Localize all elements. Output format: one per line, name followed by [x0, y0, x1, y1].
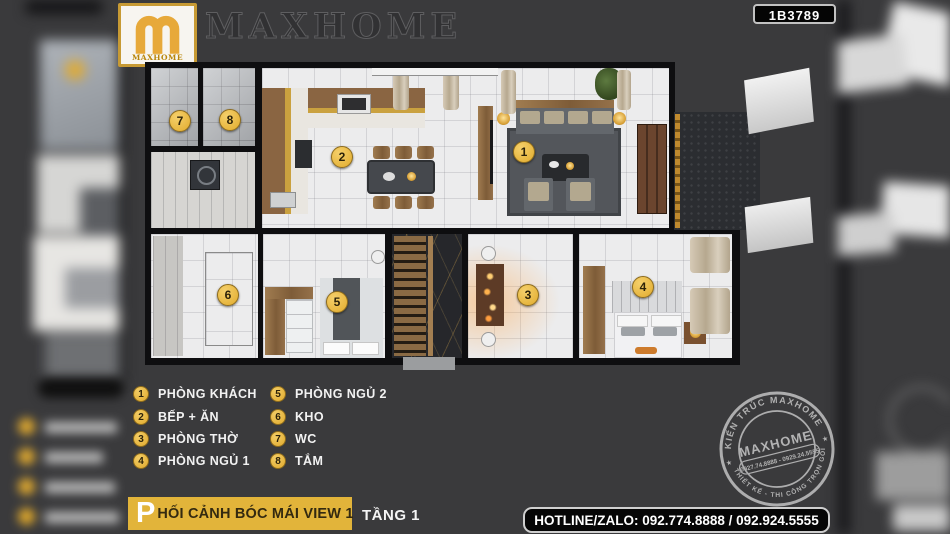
blur-shape [80, 188, 122, 236]
curtain [501, 70, 516, 114]
armchair [524, 178, 553, 211]
table-decor [407, 172, 416, 181]
legend-label: PHÒNG THỜ [158, 432, 238, 446]
pillow [617, 315, 648, 327]
kitchen-living-floor [262, 68, 669, 228]
dining-chair [417, 146, 434, 159]
pillow-gray [621, 327, 645, 336]
blur-shape [888, 386, 950, 454]
legend-number: 3 [133, 431, 149, 447]
blur-shape [45, 422, 117, 433]
sofa-cushion [568, 111, 588, 124]
legend-number: 5 [270, 386, 286, 402]
legend-number: 8 [270, 453, 286, 469]
blur-shape [838, 212, 896, 257]
room-bath [203, 68, 255, 146]
legend-number: 2 [133, 409, 149, 425]
decor-round [371, 250, 385, 264]
curtain [443, 70, 459, 110]
floor-label: TẦNG 1 [362, 507, 420, 524]
blur-shape [18, 418, 35, 435]
legend-label: PHÒNG NGỦ 2 [295, 387, 387, 401]
blur-shape [40, 40, 118, 150]
pillow [352, 342, 379, 355]
legend-number: 7 [270, 431, 286, 447]
blur-shape [45, 452, 103, 463]
dining-chair [373, 196, 390, 209]
room-storage [151, 234, 258, 358]
curtain [690, 237, 730, 273]
room-bedroom2 [263, 234, 385, 358]
altar-vase [481, 332, 496, 347]
window-sill [372, 68, 498, 76]
blur-shape [65, 268, 120, 308]
dining-table [367, 160, 435, 194]
dining-chair [373, 146, 390, 159]
plan-marker-5: 5 [326, 291, 348, 313]
floor-lamp [613, 112, 626, 125]
curtain [617, 70, 631, 110]
legend-label: KHO [295, 410, 324, 424]
plan-marker-8: 8 [219, 109, 241, 131]
sink [270, 192, 296, 208]
maxhome-logo-m-icon [131, 8, 184, 56]
armchair [566, 178, 595, 211]
sofa-cushion [520, 111, 540, 124]
legend-number: 1 [133, 386, 149, 402]
room-wc [151, 68, 198, 146]
pillow-gray [653, 327, 677, 336]
tv-console [478, 106, 493, 200]
entrance-door [637, 124, 667, 214]
plan-code-badge: 1B3789 [753, 4, 836, 24]
table-plate [383, 172, 395, 181]
blur-shape [876, 452, 950, 500]
armchair-cushion [570, 182, 591, 201]
sofa-cushion [544, 111, 564, 124]
porch-step [745, 197, 814, 253]
washing-machine [190, 160, 220, 190]
storage-shelf-side [153, 236, 183, 356]
altar-vase [481, 246, 496, 261]
pillow [323, 342, 350, 355]
pillow [651, 315, 682, 327]
view-title-initial: P [136, 499, 155, 528]
altar-table [476, 264, 504, 326]
blur-shape [25, 0, 103, 14]
stove [337, 94, 371, 114]
logo-wordmark: MAXHOME [121, 53, 194, 62]
legend-label: PHÒNG NGỦ 1 [158, 454, 250, 468]
maxhome-logo: MAXHOME [118, 3, 197, 67]
hotline-badge: HOTLINE/ZALO: 092.774.8888 / 092.924.555… [523, 507, 830, 533]
view-title-banner: P HỐI CẢNH BÓC MÁI VIEW 1 [128, 497, 352, 530]
legend-number: 6 [270, 409, 286, 425]
plan-marker-1: 1 [513, 141, 535, 163]
curtain [393, 70, 409, 110]
legend-label: PHÒNG KHÁCH [158, 387, 257, 401]
stair-rail [428, 236, 433, 356]
blur-shape [120, 30, 125, 380]
blur-shape [18, 508, 35, 525]
plan-marker-4: 4 [632, 276, 654, 298]
stamp-star-icon: ★ [821, 434, 829, 443]
sofa-cushion [592, 111, 612, 124]
dining-chair [417, 196, 434, 209]
table-decor [566, 162, 574, 170]
sofa [516, 108, 614, 134]
plan-marker-6: 6 [217, 284, 239, 306]
brand-title: MAXHOME [205, 6, 462, 47]
bed1-mattress [614, 312, 682, 358]
door-threshold [675, 114, 680, 228]
porch-step [744, 68, 814, 134]
floor-plan [145, 62, 740, 365]
blur-shape [38, 378, 124, 398]
blur-shape [838, 34, 909, 94]
wardrobe [265, 299, 285, 355]
laundry-area [151, 152, 255, 228]
coffee-table [542, 154, 589, 181]
bedroom2-counter [265, 287, 313, 299]
dining-chair [395, 196, 412, 209]
plan-marker-3: 3 [517, 284, 539, 306]
legend-label: BẾP + ĂN [158, 410, 219, 424]
armchair-cushion [528, 182, 549, 201]
legend-label: WC [295, 432, 317, 446]
plan-marker-2: 2 [331, 146, 353, 168]
plan-marker-7: 7 [169, 110, 191, 132]
stove-burners [342, 98, 366, 110]
company-stamp: KIẾN TRÚC MAXHOME THIẾT KẾ - THI CÔNG TR… [702, 374, 852, 524]
fridge [295, 140, 312, 168]
stamp-star-icon: ★ [725, 458, 733, 467]
room-bedroom1 [579, 234, 732, 358]
blur-shape [18, 478, 35, 495]
legend-label: TẮM [295, 454, 323, 468]
bed2 [320, 278, 383, 358]
left-legend-blur [0, 372, 126, 534]
curtain [690, 288, 730, 334]
view-title-text: HỐI CẢNH BÓC MÁI VIEW 1 [157, 506, 353, 522]
legend-number: 4 [133, 453, 149, 469]
blur-shape [893, 505, 950, 531]
blur-shape [45, 482, 115, 493]
back-step [403, 357, 455, 370]
right-filmstrip-blur [838, 0, 950, 534]
tv-screen [490, 120, 493, 184]
table-decor [549, 161, 559, 168]
bed-throw [635, 347, 657, 354]
wardrobe [583, 266, 605, 354]
blur-shape [45, 512, 119, 523]
staircase [394, 236, 426, 356]
presentation-slide: MAXHOME MAXHOME 1B3789 [0, 0, 950, 534]
stair-hall [392, 234, 462, 358]
blur-shape [18, 448, 35, 465]
dresser [286, 299, 313, 353]
blur-shape [65, 60, 85, 80]
dining-chair [395, 146, 412, 159]
